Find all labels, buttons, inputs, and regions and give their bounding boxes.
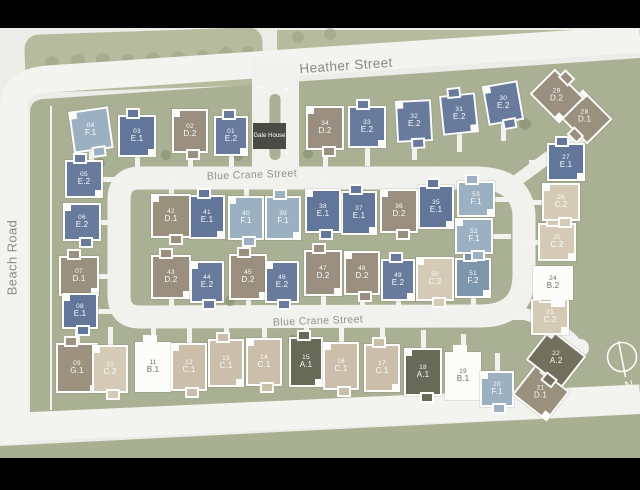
traffic-arrow-down-icon: ▼ bbox=[258, 86, 264, 92]
letterbox-bottom bbox=[0, 458, 640, 490]
street-label-beach-road: Beach Road bbox=[5, 198, 20, 318]
ne-culdesac bbox=[567, 129, 585, 147]
traffic-arrow-up-icon: ▲ bbox=[284, 150, 290, 156]
traffic-arrow-up-icon: ▲ bbox=[284, 86, 290, 92]
letterbox-top bbox=[0, 0, 640, 28]
traffic-arrow-down-icon: ▼ bbox=[258, 150, 264, 156]
gate-house-label: Gate House bbox=[253, 123, 286, 149]
site-plan-map: 01E.202D.203E.104F.105E.206E.207D.108E.1… bbox=[0, 0, 640, 490]
se-culdesac bbox=[571, 339, 589, 357]
